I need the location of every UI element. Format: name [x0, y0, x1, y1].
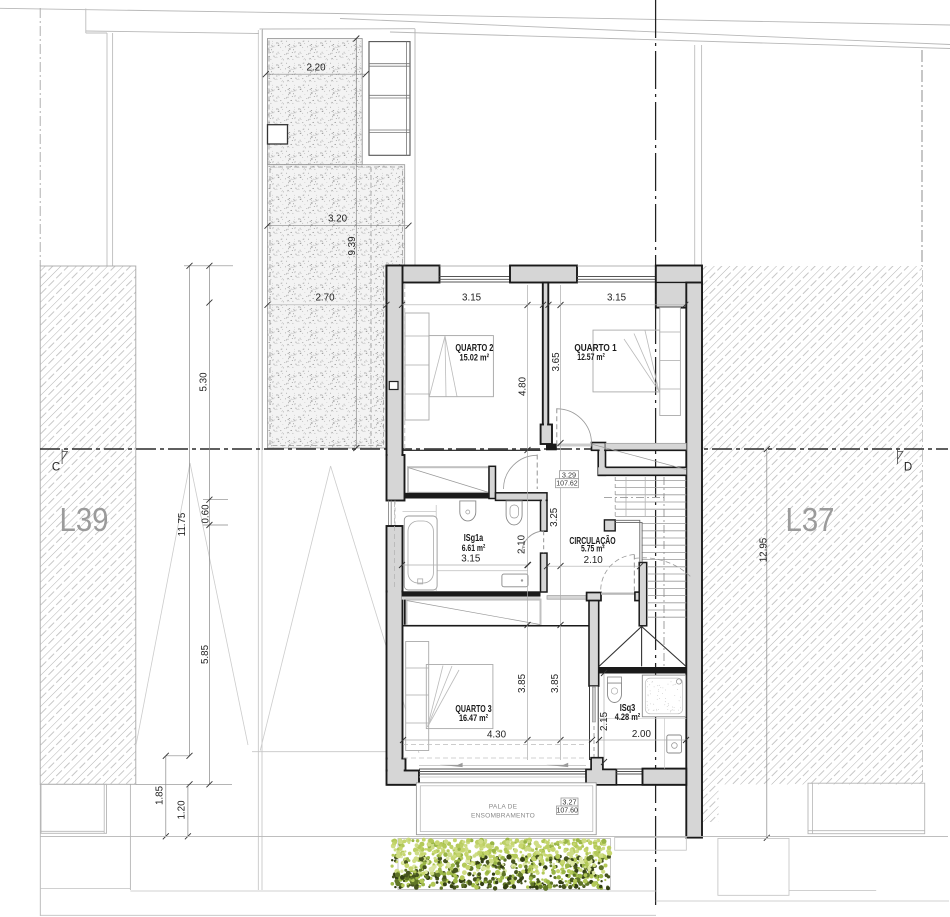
svg-text:4.80: 4.80 — [517, 376, 528, 396]
svg-text:6.61 m²: 6.61 m² — [462, 543, 486, 553]
svg-text:11.75: 11.75 — [177, 512, 188, 536]
svg-text:9.39: 9.39 — [347, 236, 358, 255]
svg-text:2.70: 2.70 — [315, 293, 335, 304]
svg-text:3.85: 3.85 — [550, 673, 561, 693]
svg-text:L37: L37 — [786, 501, 835, 538]
svg-text:4.30: 4.30 — [487, 729, 507, 740]
svg-text:3.85: 3.85 — [517, 673, 528, 693]
svg-text:4.28 m²: 4.28 m² — [615, 712, 641, 722]
svg-text:PALA DE: PALA DE — [489, 803, 518, 810]
svg-text:5.85: 5.85 — [200, 644, 211, 664]
svg-text:2.20: 2.20 — [306, 62, 326, 73]
svg-text:C: C — [52, 462, 60, 474]
svg-text:5.75 m²: 5.75 m² — [581, 544, 605, 554]
svg-text:3.15: 3.15 — [607, 292, 627, 303]
svg-text:3.20: 3.20 — [328, 214, 348, 225]
svg-text:16.47 m²: 16.47 m² — [459, 713, 488, 723]
svg-text:12.57 m²: 12.57 m² — [577, 352, 605, 362]
svg-text:15.02 m²: 15.02 m² — [460, 353, 490, 363]
svg-text:D: D — [904, 462, 912, 474]
svg-text:107.62: 107.62 — [556, 481, 578, 488]
svg-text:2.00: 2.00 — [632, 729, 652, 740]
svg-text:2.10: 2.10 — [516, 534, 527, 554]
svg-text:3.15: 3.15 — [462, 292, 482, 303]
svg-text:3.27: 3.27 — [562, 798, 576, 807]
svg-text:2.10: 2.10 — [584, 555, 604, 566]
svg-text:L39: L39 — [60, 501, 109, 538]
svg-text:12.95: 12.95 — [759, 537, 770, 562]
svg-text:3.65: 3.65 — [551, 352, 562, 372]
svg-text:2.15: 2.15 — [599, 711, 610, 731]
svg-text:3.15: 3.15 — [461, 553, 481, 564]
svg-text:1.85: 1.85 — [155, 785, 166, 805]
svg-text:1.20: 1.20 — [177, 800, 188, 820]
svg-text:ENSOMBRAMENTO: ENSOMBRAMENTO — [471, 813, 535, 820]
svg-text:5.30: 5.30 — [199, 372, 210, 392]
svg-text:3.29: 3.29 — [562, 470, 576, 479]
svg-text:0.60: 0.60 — [201, 504, 212, 524]
svg-text:107.60: 107.60 — [556, 808, 578, 815]
svg-text:3.25: 3.25 — [549, 507, 560, 527]
